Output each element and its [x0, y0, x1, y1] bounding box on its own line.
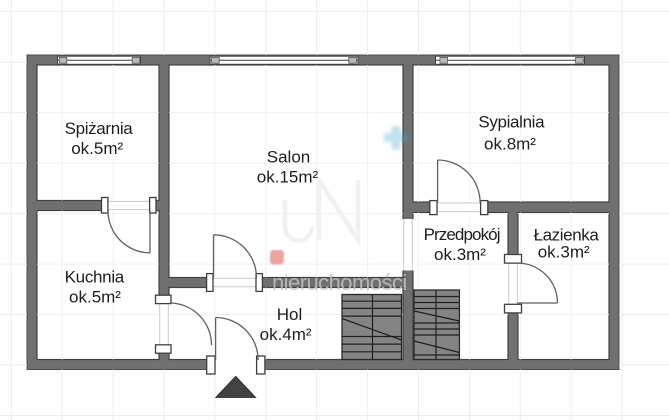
svg-text:ok.5m²: ok.5m²	[71, 139, 123, 158]
svg-text:Spiżarnia: Spiżarnia	[65, 119, 134, 138]
svg-text:ok.4m²: ok.4m²	[260, 325, 312, 344]
svg-text:ok.8m²: ok.8m²	[484, 134, 536, 153]
svg-text:ok.15m²: ok.15m²	[257, 168, 319, 187]
svg-text:Hol: Hol	[277, 305, 303, 324]
svg-text:ok.3m²: ok.3m²	[434, 245, 486, 264]
svg-text:ok.5m²: ok.5m²	[69, 287, 121, 306]
svg-text:nieruchomości: nieruchomości	[272, 270, 407, 295]
svg-text:Salon: Salon	[267, 147, 310, 166]
svg-text:Kuchnia: Kuchnia	[65, 267, 125, 286]
svg-text:Sypialnia: Sypialnia	[478, 112, 545, 131]
svg-text:ok.3m²: ok.3m²	[538, 243, 590, 262]
svg-text:Przedpokój: Przedpokój	[424, 225, 500, 244]
